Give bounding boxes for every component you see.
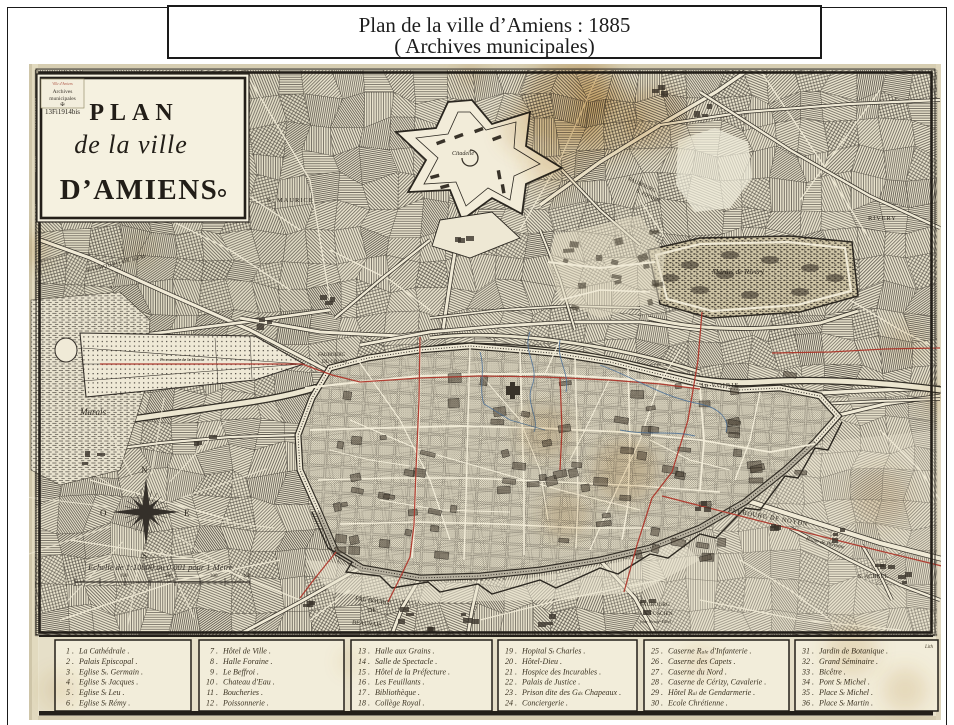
svg-text:Collège Royal .: Collège Royal .: [375, 699, 425, 708]
svg-text:2 .: 2 .: [66, 657, 74, 666]
svg-text:Caserne de Cérizy, Cavalerie .: Caserne de Cérizy, Cavalerie .: [668, 678, 766, 687]
svg-text:20 .: 20 .: [505, 657, 517, 666]
svg-text:Halle aux Grains .: Halle aux Grains .: [374, 647, 435, 656]
svg-text:Hôtel-Dieu .: Hôtel-Dieu .: [521, 657, 562, 666]
svg-text:17 .: 17 .: [358, 688, 370, 697]
svg-text:La Cathédrale .: La Cathédrale .: [78, 647, 129, 656]
svg-text:de la ville: de la ville: [74, 130, 188, 159]
svg-text:Pont St Michel .: Pont St Michel .: [818, 678, 870, 687]
svg-text:28 .: 28 .: [651, 678, 663, 687]
svg-text:11 .: 11 .: [207, 688, 218, 697]
svg-text:36 .: 36 .: [801, 699, 814, 708]
svg-text:Citadelle: Citadelle: [452, 151, 474, 157]
svg-text:DE: DE: [368, 608, 376, 614]
svg-text:16 .: 16 .: [358, 678, 370, 687]
svg-text:Prison dite des Gds Chapeaux .: Prison dite des Gds Chapeaux .: [521, 688, 621, 697]
svg-text:S. FUSCIEN: S. FUSCIEN: [644, 611, 673, 617]
svg-text:N: N: [141, 465, 148, 475]
svg-text:8 .: 8 .: [210, 657, 218, 666]
svg-text:Palais de Justice .: Palais de Justice .: [521, 678, 580, 687]
svg-text:FAUBOURG: FAUBOURG: [318, 353, 346, 358]
svg-text:Promenade de la Hotoie: Promenade de la Hotoie: [159, 357, 204, 362]
svg-text:12 .: 12 .: [206, 699, 218, 708]
svg-text:200: 200: [165, 574, 173, 579]
svg-text:7 .: 7 .: [210, 647, 218, 656]
svg-text:31 .: 31 .: [801, 647, 814, 656]
svg-text:municipales: municipales: [49, 96, 76, 102]
svg-text:30 .: 30 .: [650, 699, 663, 708]
svg-text:35 .: 35 .: [801, 688, 814, 697]
svg-text:Archives: Archives: [53, 89, 73, 95]
svg-text:Palais Episcopal .: Palais Episcopal .: [78, 657, 137, 666]
svg-text:Eglise St Jacques .: Eglise St Jacques .: [78, 678, 138, 687]
svg-text:Hôtel de la Préfecture .: Hôtel de la Préfecture .: [374, 667, 450, 676]
svg-text:S. ACHEUL: S. ACHEUL: [858, 574, 889, 580]
svg-text:RIVERY: RIVERY: [868, 215, 897, 222]
svg-text:Place St Michel .: Place St Michel .: [818, 688, 873, 697]
svg-text:100: 100: [120, 574, 128, 579]
svg-text:Salle de Spectacle .: Salle de Spectacle .: [375, 657, 437, 666]
svg-text:9 .: 9 .: [210, 667, 218, 676]
svg-text:S. MAURICE: S. MAURICE: [267, 197, 314, 204]
svg-text:300: 300: [210, 574, 218, 579]
svg-text:1 .: 1 .: [66, 647, 74, 656]
svg-text:25 .: 25 .: [651, 647, 663, 656]
svg-text:Marais: Marais: [79, 407, 107, 417]
svg-text:Boucheries .: Boucheries .: [223, 688, 263, 697]
svg-text:Chateau d'Eau .: Chateau d'Eau .: [223, 678, 275, 687]
svg-text:(rue Neuve-Ville): (rue Neuve-Ville): [640, 619, 672, 624]
svg-text:21 .: 21 .: [505, 667, 517, 676]
svg-text:Ville d'Amiens: Ville d'Amiens: [52, 82, 73, 86]
svg-text:D’AMIENS: D’AMIENS: [60, 174, 219, 206]
svg-text:Le Beffroi .: Le Beffroi .: [222, 667, 259, 676]
svg-text:Sn VOIRIE: Sn VOIRIE: [700, 382, 739, 389]
svg-text:DU COURS: DU COURS: [322, 360, 347, 365]
svg-text:Ecole Chrétienne .: Ecole Chrétienne .: [667, 699, 728, 708]
svg-text:22 .: 22 .: [505, 678, 517, 687]
svg-text:29 .: 29 .: [651, 688, 663, 697]
svg-text:Les Feuillants .: Les Feuillants .: [374, 678, 425, 687]
svg-text:34 .: 34 .: [801, 678, 814, 687]
svg-text:Marais de Rivery: Marais de Rivery: [711, 267, 765, 276]
svg-text:Eglise St Leu .: Eglise St Leu .: [78, 688, 125, 697]
svg-text:24 .: 24 .: [505, 699, 517, 708]
svg-text:E: E: [184, 508, 190, 518]
svg-text:Hôtel de Ville .: Hôtel de Ville .: [222, 647, 271, 656]
svg-text:19 .: 19 .: [505, 647, 517, 656]
svg-text:O: O: [100, 508, 107, 518]
svg-text:Hôtel Ral de Gendarmerie .: Hôtel Ral de Gendarmerie .: [667, 688, 755, 697]
svg-text:Bibliothèque .: Bibliothèque .: [375, 688, 420, 697]
svg-text:Poissonnerie .: Poissonnerie .: [222, 699, 269, 708]
svg-text:32 .: 32 .: [801, 657, 814, 666]
svg-text:33 .: 33 .: [801, 667, 814, 676]
svg-text:15 .: 15 .: [358, 667, 370, 676]
svg-text:23 .: 23 .: [505, 688, 517, 697]
svg-text:Eglise St. Germain .: Eglise St. Germain .: [78, 667, 143, 676]
svg-text:18 .: 18 .: [358, 699, 370, 708]
svg-text:Echelle de 1:10000 ou 0,001 po: Echelle de 1:10000 ou 0,001 pour 1 Mètre: [87, 562, 233, 572]
svg-text:13Fi1914bis: 13Fi1914bis: [45, 108, 80, 116]
svg-text:Conciergerie .: Conciergerie .: [522, 699, 568, 708]
svg-text:27 .: 27 .: [651, 667, 663, 676]
svg-text:S: S: [142, 551, 147, 561]
svg-text:Eglise St Rémy .: Eglise St Rémy .: [78, 699, 130, 708]
svg-text:PLAN: PLAN: [89, 100, 178, 126]
svg-text:Lith: Lith: [924, 645, 934, 650]
svg-text:10 .: 10 .: [206, 678, 218, 687]
svg-text:Hopital St Charles .: Hopital St Charles .: [521, 647, 585, 656]
svg-text:13 .: 13 .: [358, 647, 370, 656]
svg-text:400: 400: [243, 574, 251, 579]
svg-text:Place St Martin .: Place St Martin .: [818, 699, 873, 708]
svg-text:FAUBOURG: FAUBOURG: [640, 602, 670, 608]
svg-text:Halle Foraine .: Halle Foraine .: [222, 657, 273, 666]
svg-text:26 .: 26 .: [651, 657, 663, 666]
svg-text:Hospice des Incurables .: Hospice des Incurables .: [521, 667, 601, 676]
